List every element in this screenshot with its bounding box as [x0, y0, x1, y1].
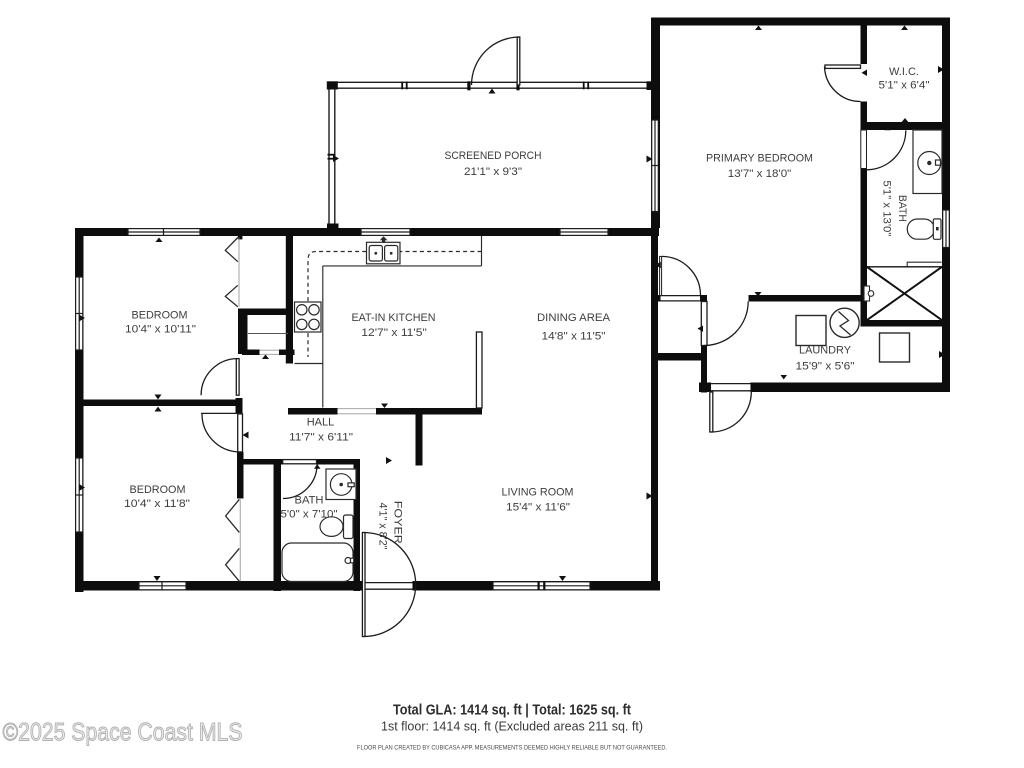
svg-text:12'7" x 11'5": 12'7" x 11'5"	[361, 327, 427, 339]
svg-text:FOYER: FOYER	[392, 501, 404, 544]
svg-text:LIVING ROOM: LIVING ROOM	[502, 487, 574, 499]
svg-text:W.I.C.: W.I.C.	[889, 66, 919, 78]
svg-text:BATH: BATH	[295, 494, 324, 506]
svg-text:5'1" x 6'4": 5'1" x 6'4"	[879, 80, 930, 92]
svg-text:BEDROOM: BEDROOM	[130, 484, 186, 496]
svg-text:PRIMARY BEDROOM: PRIMARY BEDROOM	[706, 153, 813, 165]
svg-text:5'1" x 13'0": 5'1" x 13'0"	[881, 180, 893, 236]
svg-text:BATH: BATH	[896, 195, 908, 222]
svg-text:BEDROOM: BEDROOM	[132, 310, 188, 322]
svg-text:HALL: HALL	[307, 417, 335, 429]
svg-text:Total GLA: 1414 sq. ft | Total: Total GLA: 1414 sq. ft | Total: 1625 sq.…	[393, 703, 631, 719]
svg-text:11'7" x 6'11": 11'7" x 6'11"	[289, 432, 353, 444]
svg-text:EAT-IN KITCHEN: EAT-IN KITCHEN	[352, 312, 436, 324]
svg-text:10'4" x 11'8": 10'4" x 11'8"	[124, 498, 190, 510]
svg-text:5'0" x 7'10": 5'0" x 7'10"	[281, 508, 338, 520]
svg-text:SCREENED PORCH: SCREENED PORCH	[445, 150, 542, 162]
svg-text:13'7" x 18'0": 13'7" x 18'0"	[728, 168, 792, 180]
svg-text:©2025 Space Coast MLS: ©2025 Space Coast MLS	[3, 720, 243, 747]
svg-text:10'4" x 10'11": 10'4" x 10'11"	[125, 324, 196, 336]
svg-text:14'8" x 11'5": 14'8" x 11'5"	[542, 330, 606, 342]
svg-text:21'1" x 9'3": 21'1" x 9'3"	[464, 166, 522, 178]
svg-text:LAUNDRY: LAUNDRY	[799, 345, 852, 357]
svg-text:DINING AREA: DINING AREA	[537, 312, 611, 324]
svg-text:15'9" x 5'6": 15'9" x 5'6"	[796, 360, 855, 372]
svg-text:15'4" x 11'6": 15'4" x 11'6"	[506, 502, 570, 514]
svg-text:FLOOR PLAN CREATED BY CUBICASA: FLOOR PLAN CREATED BY CUBICASA APP. MEAS…	[357, 744, 667, 751]
svg-text:1st floor: 1414 sq. ft (Exclud: 1st floor: 1414 sq. ft (Excluded areas 2…	[381, 719, 643, 734]
svg-text:4'1" x 8'2": 4'1" x 8'2"	[377, 503, 389, 550]
